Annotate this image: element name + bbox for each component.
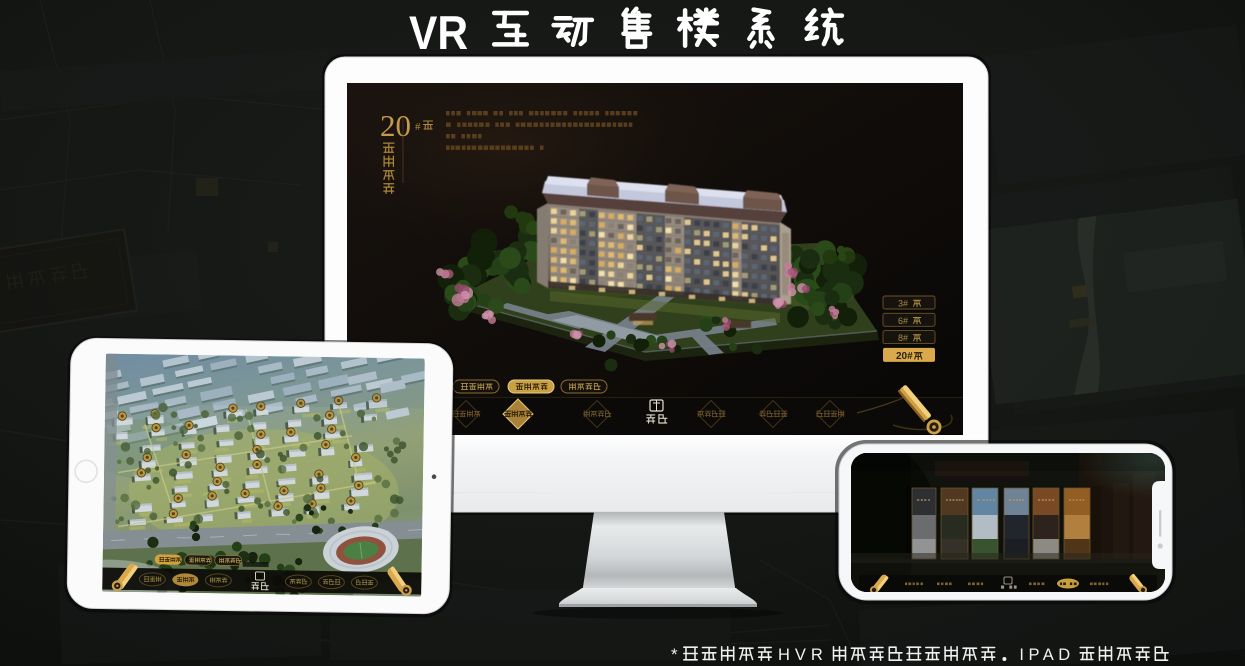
svg-text:20: 20 [380,108,411,143]
svg-text:IPAD: IPAD [1019,646,1074,664]
svg-text:*: * [671,645,678,664]
svg-text:#: # [415,121,421,133]
svg-text:6#: 6# [898,316,908,326]
svg-text:8#: 8# [898,333,908,343]
svg-text:HVR: HVR [778,646,828,664]
svg-text:VR: VR [409,6,468,59]
svg-text:20#: 20# [896,351,913,362]
svg-text:3#: 3# [898,299,908,309]
